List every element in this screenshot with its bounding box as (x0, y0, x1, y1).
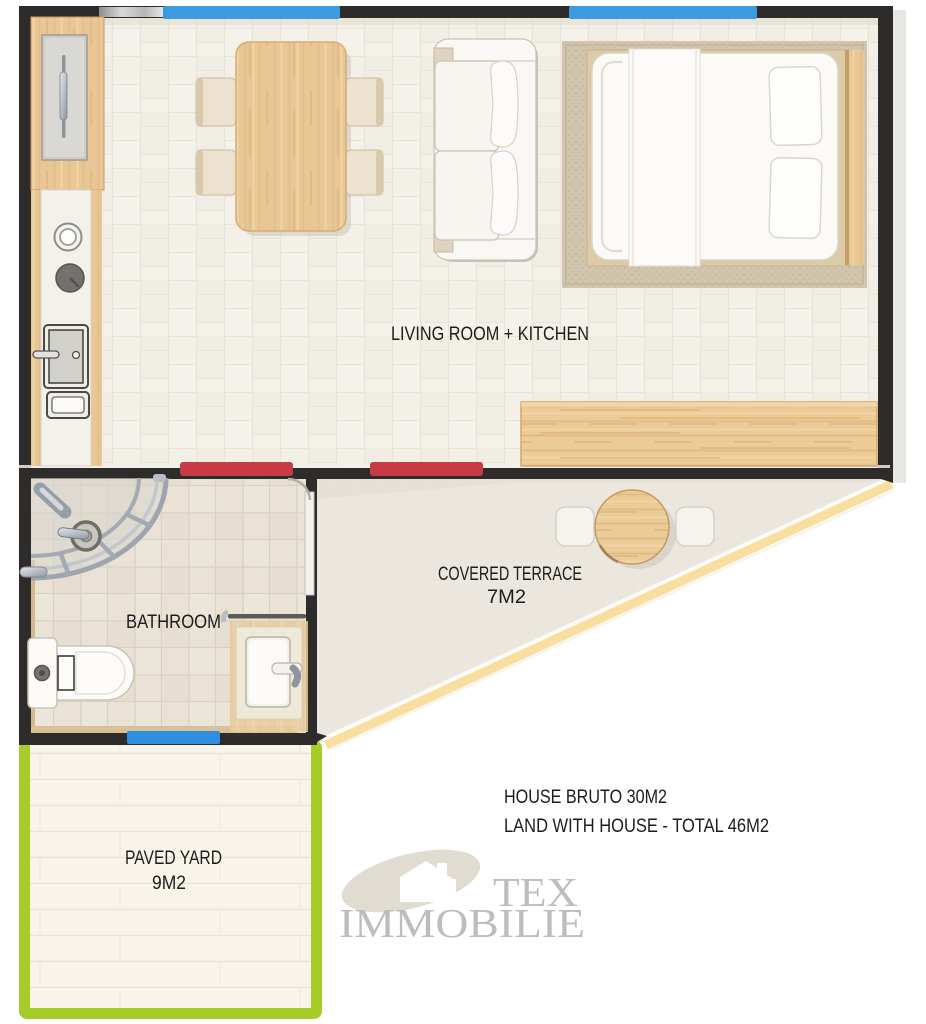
svg-text:PAVED YARD: PAVED YARD (125, 848, 222, 869)
svg-text:HOUSE BRUTO 30M2: HOUSE BRUTO 30M2 (504, 787, 667, 808)
svg-text:9M2: 9M2 (152, 873, 186, 894)
svg-text:7M2: 7M2 (487, 587, 526, 608)
svg-text:LIVING ROOM + KITCHEN: LIVING ROOM + KITCHEN (391, 324, 589, 345)
svg-text:COVERED TERRACE: COVERED TERRACE (438, 564, 582, 585)
svg-text:LAND WITH HOUSE - TOTAL 46M2: LAND WITH HOUSE - TOTAL 46M2 (504, 816, 769, 837)
svg-text:IMMOBILIE: IMMOBILIE (339, 900, 585, 946)
svg-text:BATHROOM: BATHROOM (126, 612, 221, 633)
